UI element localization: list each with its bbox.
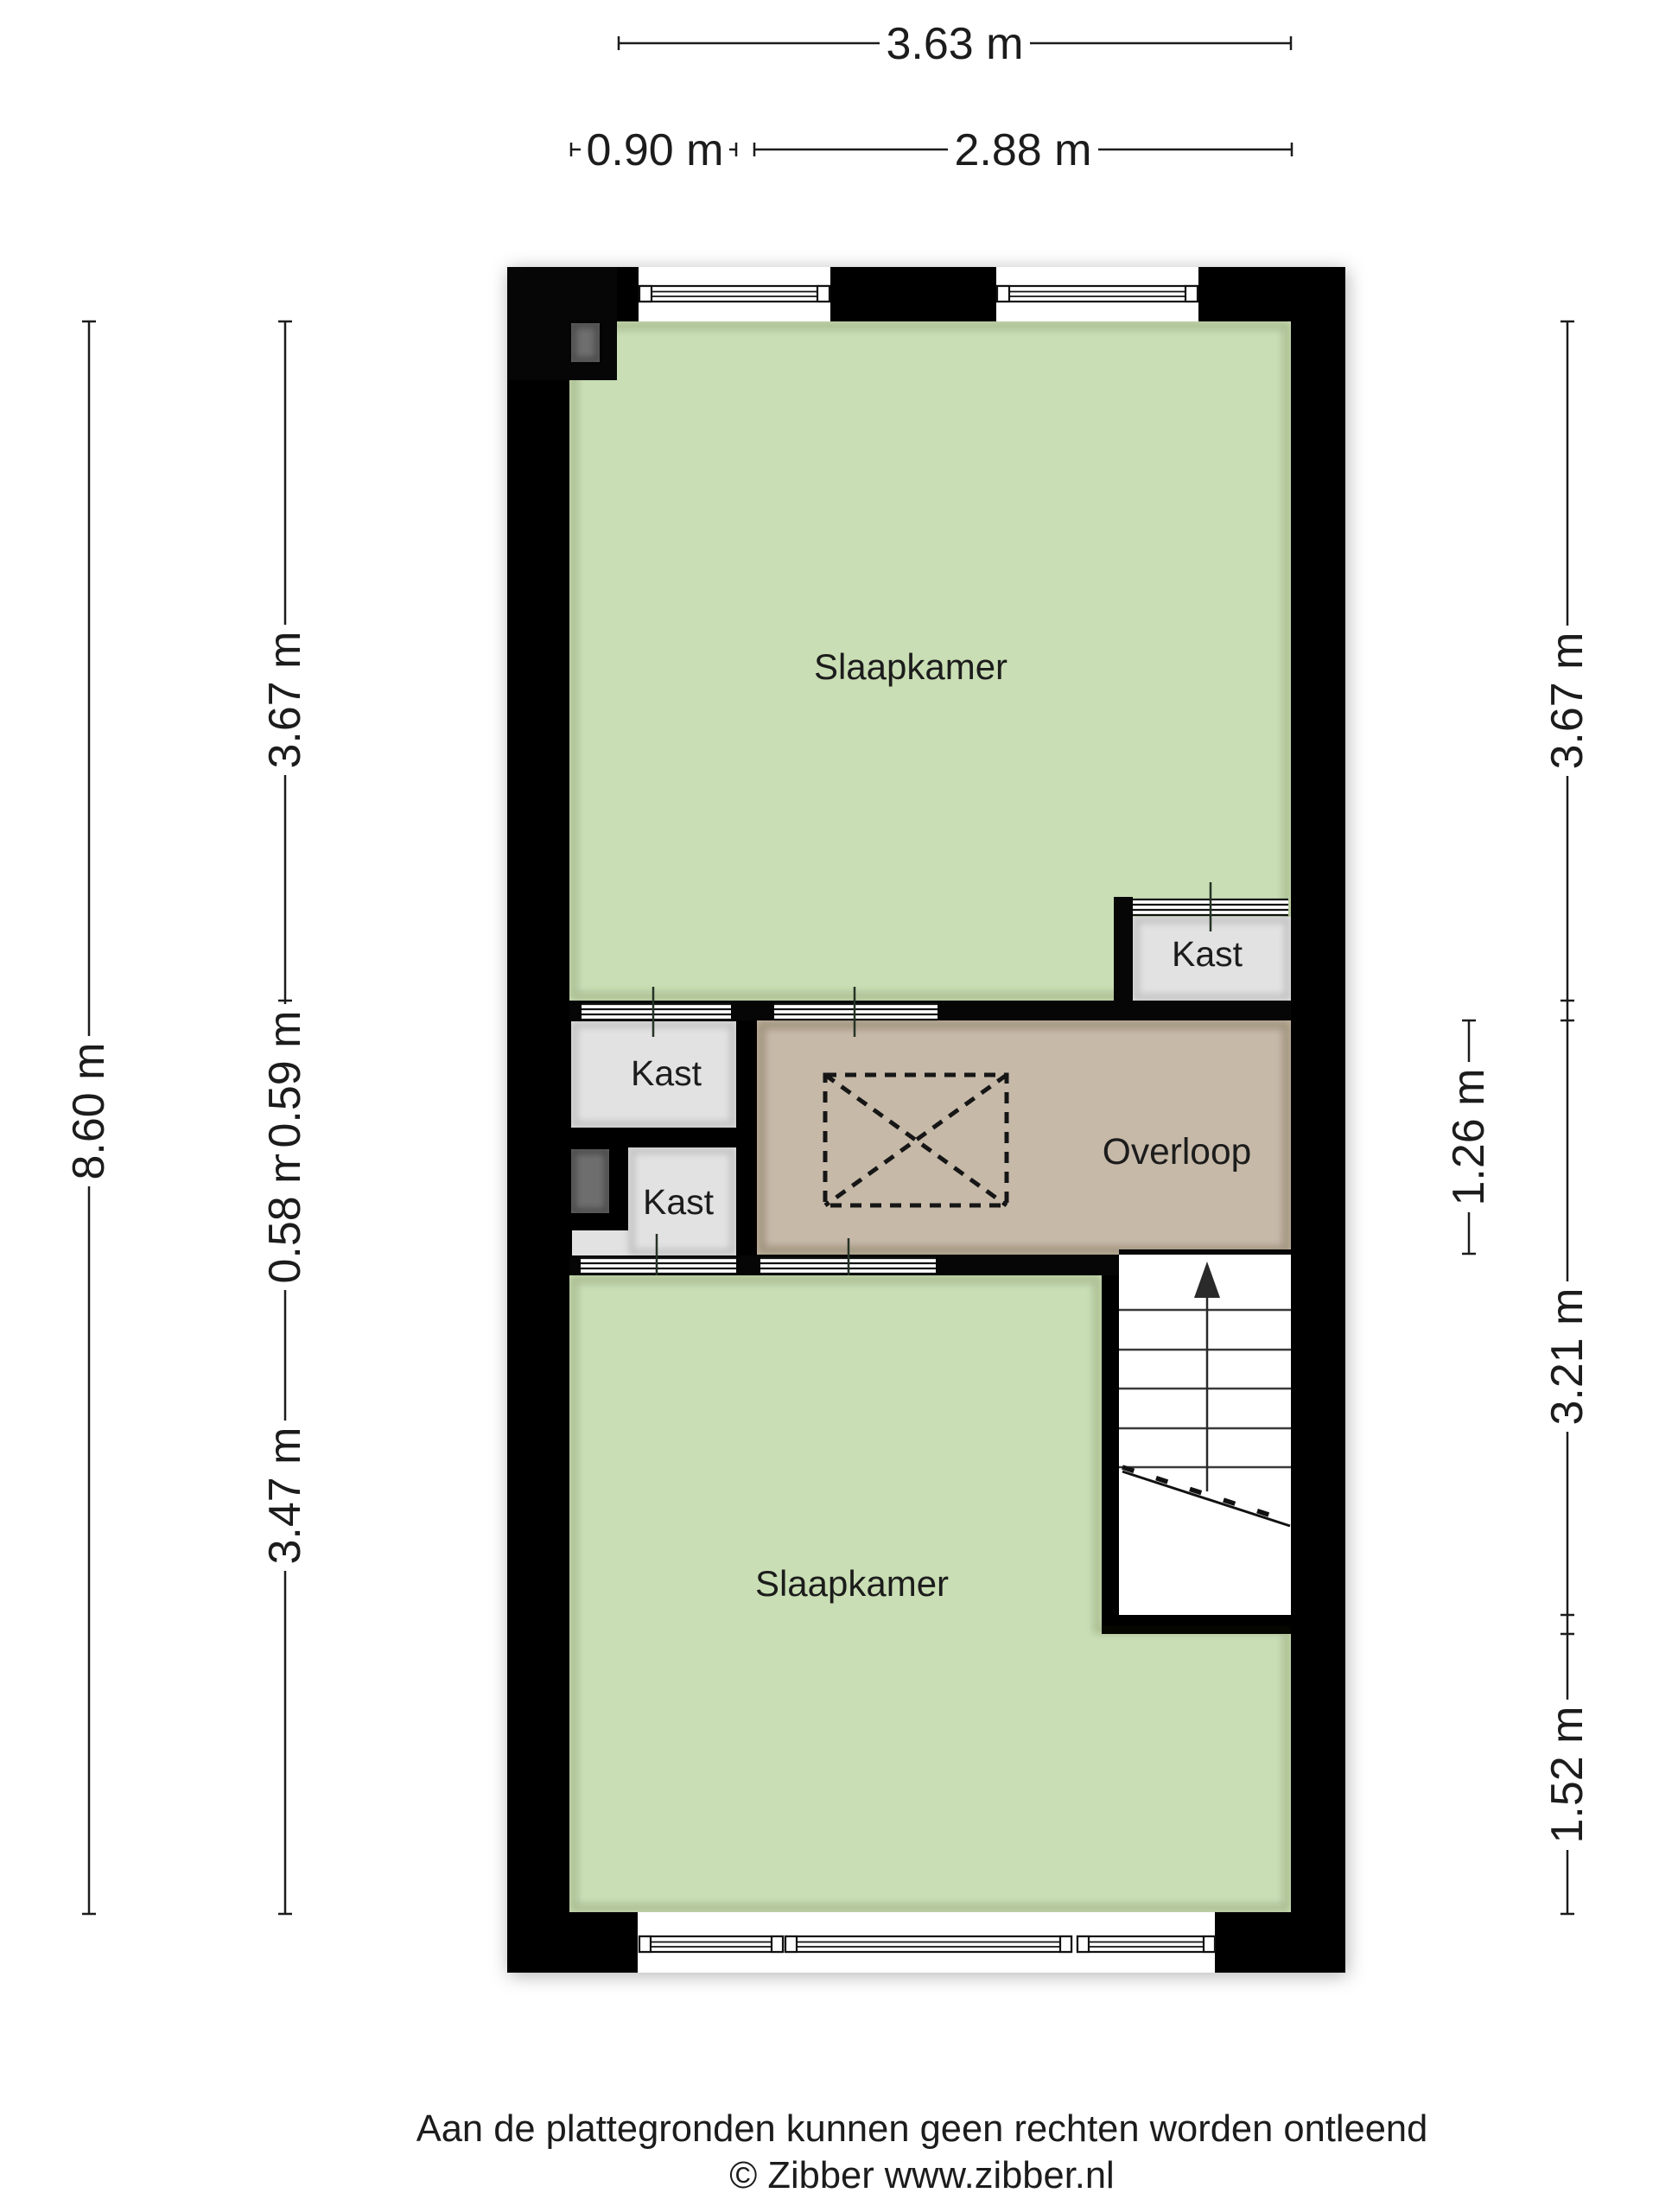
svg-text:1.52 m: 1.52 m — [1542, 1707, 1592, 1844]
svg-text:3.67 m: 3.67 m — [1542, 632, 1592, 770]
svg-text:1.26 m: 1.26 m — [1444, 1069, 1494, 1206]
svg-text:3.47 m: 3.47 m — [260, 1427, 310, 1565]
svg-text:3.63 m: 3.63 m — [887, 19, 1024, 69]
svg-text:Kast: Kast — [1172, 934, 1243, 974]
svg-text:0.58 m: 0.58 m — [260, 1147, 310, 1284]
svg-text:2.88 m: 2.88 m — [955, 125, 1092, 175]
svg-text:Kast: Kast — [643, 1182, 715, 1222]
svg-text:0.59 m: 0.59 m — [260, 1011, 310, 1148]
svg-text:Kast: Kast — [631, 1053, 702, 1093]
svg-text:Slaapkamer: Slaapkamer — [755, 1563, 949, 1604]
svg-text:Slaapkamer: Slaapkamer — [814, 646, 1007, 687]
svg-text:Aan de plattegronden kunnen ge: Aan de plattegronden kunnen geen rechten… — [416, 2108, 1428, 2150]
svg-text:3.67 m: 3.67 m — [260, 632, 310, 769]
svg-text:© Zibber www.zibber.nl: © Zibber www.zibber.nl — [729, 2155, 1114, 2196]
svg-text:Overloop: Overloop — [1103, 1132, 1251, 1173]
svg-text:8.60 m: 8.60 m — [64, 1043, 114, 1180]
svg-text:3.21 m: 3.21 m — [1542, 1288, 1592, 1426]
svg-text:0.90 m: 0.90 m — [587, 125, 724, 175]
